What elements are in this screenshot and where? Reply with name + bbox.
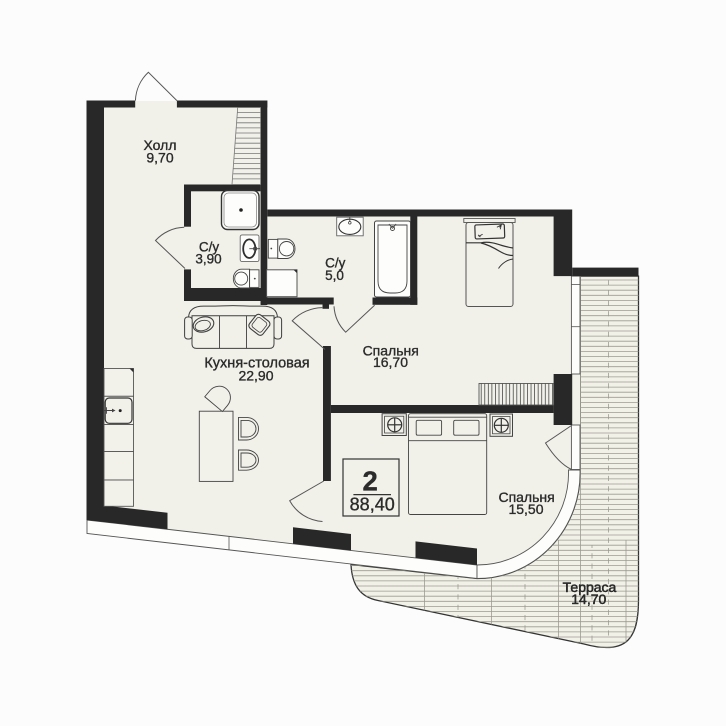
svg-text:14,70: 14,70 xyxy=(571,591,606,607)
svg-text:5,0: 5,0 xyxy=(325,268,344,283)
svg-text:22,90: 22,90 xyxy=(238,367,273,383)
svg-text:9,70: 9,70 xyxy=(146,150,173,166)
svg-text:15,50: 15,50 xyxy=(508,501,543,517)
svg-text:88,40: 88,40 xyxy=(350,495,395,515)
svg-text:16,70: 16,70 xyxy=(373,354,408,370)
svg-text:2: 2 xyxy=(363,466,378,497)
svg-text:3,90: 3,90 xyxy=(195,252,221,267)
